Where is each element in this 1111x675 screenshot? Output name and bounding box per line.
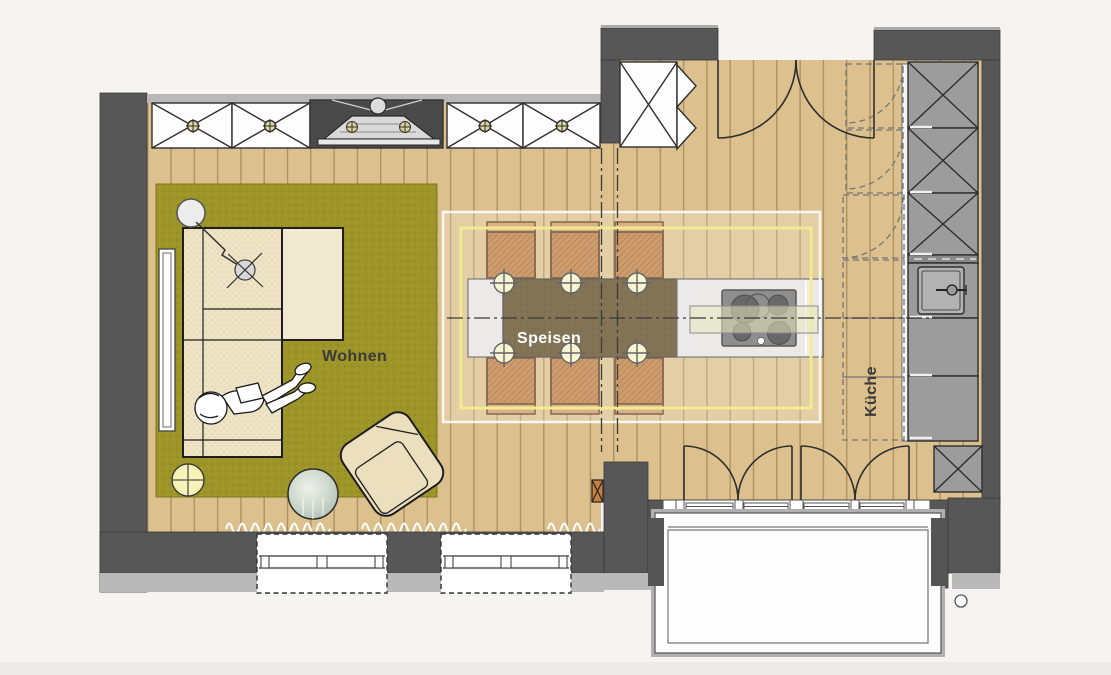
room-label-speisen: Speisen: [517, 330, 581, 347]
balcony: [648, 511, 967, 655]
drain-marker: [955, 595, 967, 607]
floor-plan: Wohnen Speisen Küche: [0, 0, 1111, 675]
wood-post: [592, 480, 603, 502]
wall-left: [100, 93, 147, 592]
wall-step-bottom: [604, 462, 648, 573]
window: [257, 534, 387, 593]
chaise: [282, 228, 343, 340]
balcony-post: [648, 518, 664, 586]
fireplace-stove: [310, 98, 443, 148]
wardrobe-cabinet: [447, 103, 523, 148]
window: [441, 534, 571, 593]
page-bottom-band: [0, 662, 1111, 675]
wardrobe-cabinet: [152, 103, 232, 148]
wall-step: [601, 60, 620, 143]
sink: [918, 267, 966, 314]
wall-right: [982, 60, 1000, 505]
round-glass-table: [288, 469, 338, 519]
extractor-hood: [690, 306, 818, 333]
balcony-post: [931, 518, 947, 586]
wardrobe-cabinet: [232, 103, 310, 148]
room-label-wohnen: Wohnen: [322, 348, 387, 365]
wardrobe-cabinet: [523, 103, 600, 148]
wall-top-kitchen-right: [874, 30, 1000, 60]
side-lamp: [172, 464, 204, 496]
kitchen-counter: [908, 376, 978, 441]
radiator: [159, 249, 175, 431]
wall-top-kitchen-left: [601, 28, 718, 60]
flue: [370, 98, 386, 114]
kitchen-counter: [908, 318, 978, 376]
room-label-kueche: Küche: [863, 366, 880, 417]
